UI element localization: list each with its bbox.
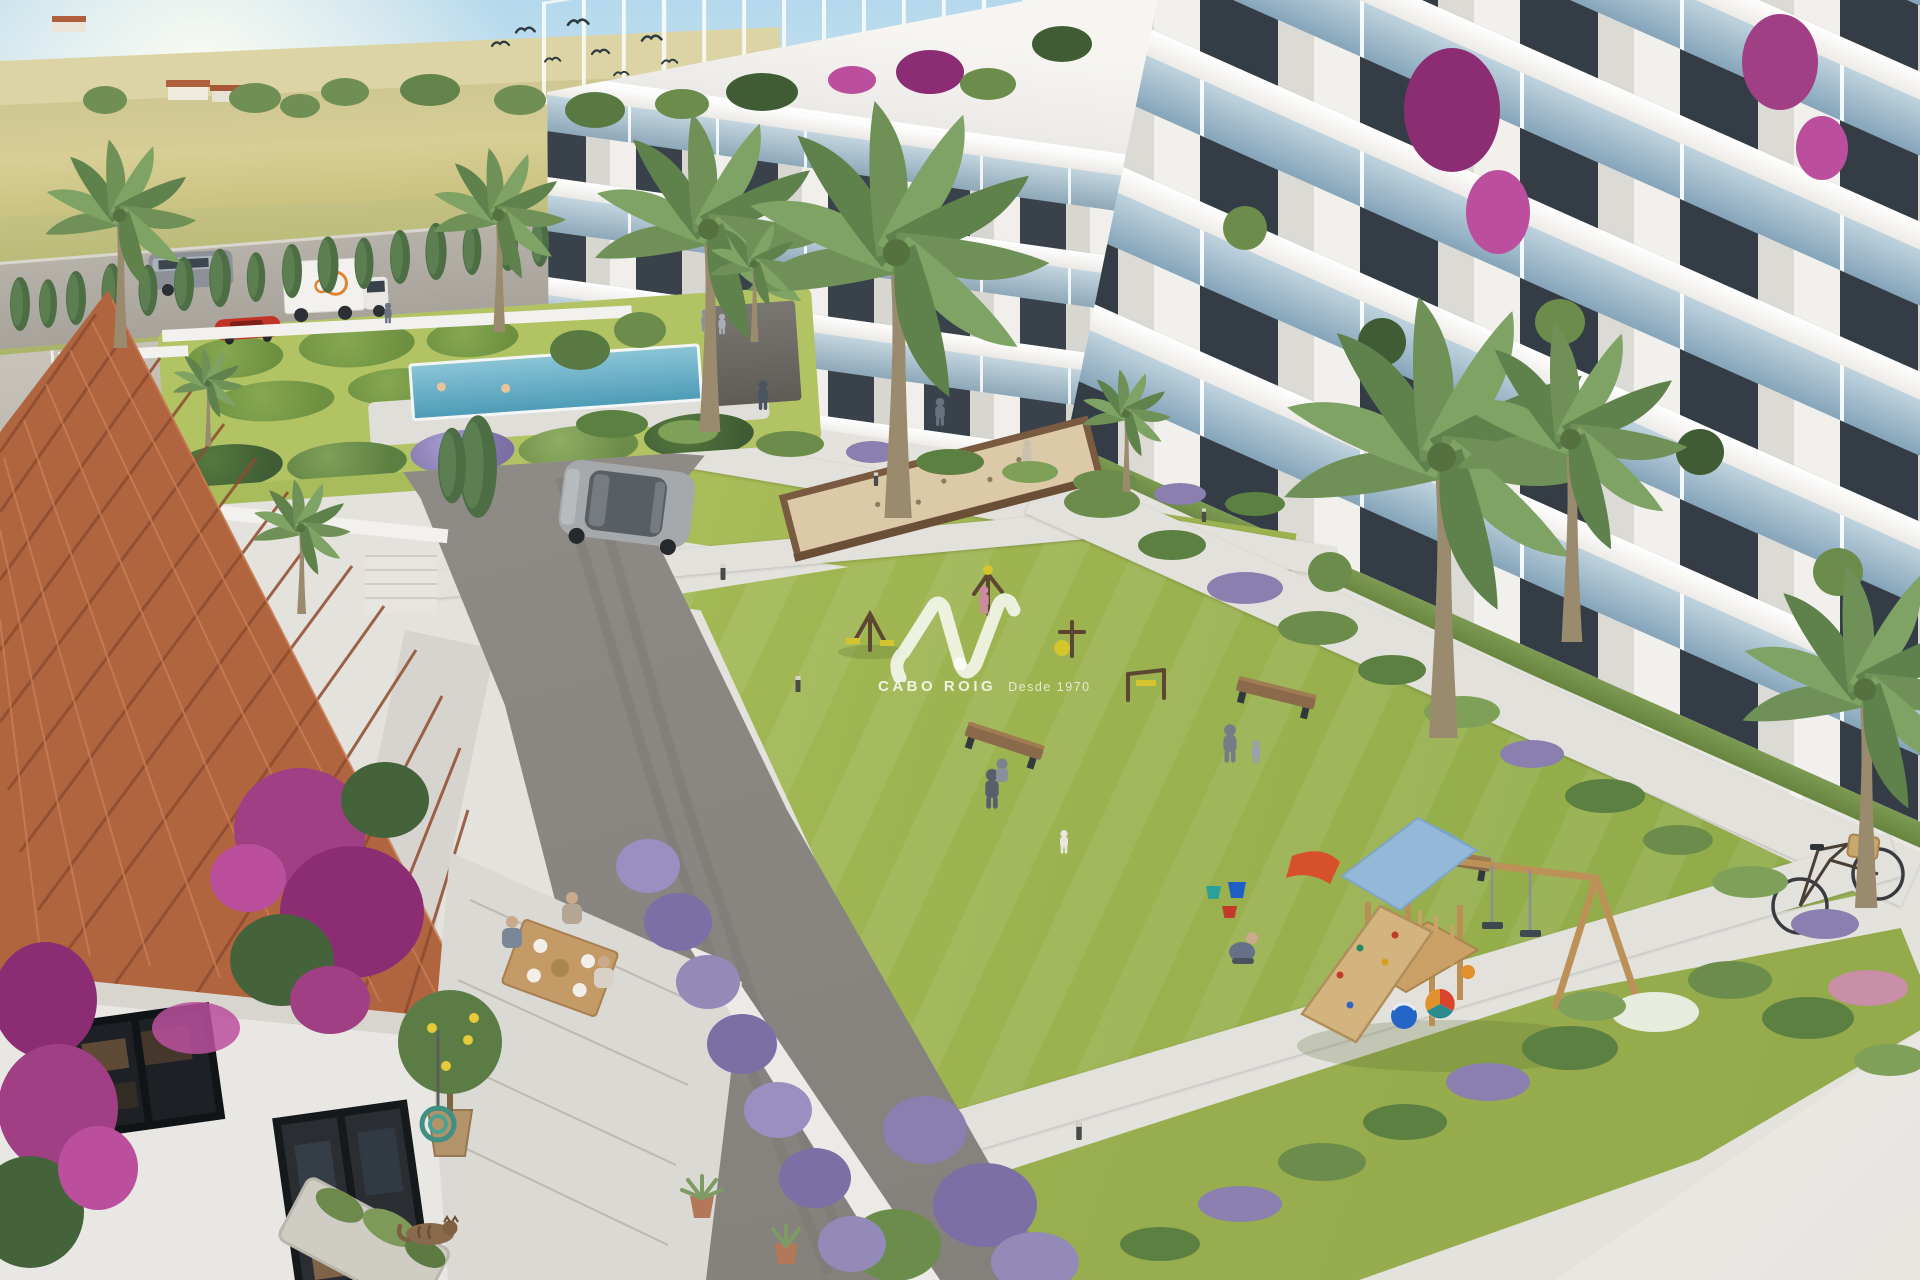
- person: [719, 314, 726, 335]
- palm-tree: [172, 347, 244, 446]
- swing-set: [1448, 860, 1636, 1006]
- person: [1224, 724, 1237, 762]
- crouching-person: [1229, 932, 1258, 964]
- toddler: [1060, 830, 1068, 854]
- distant-farmhouses: [52, 16, 244, 102]
- distant-trees: [83, 74, 625, 128]
- toy-buckets: [1206, 882, 1246, 918]
- silver-suv: [556, 458, 697, 557]
- adult-holding-child: [985, 759, 1008, 809]
- child: [1252, 740, 1260, 764]
- petanque-court: [779, 419, 1105, 562]
- palm-tree: [43, 138, 196, 348]
- palm-tree: [251, 478, 350, 614]
- av-monogram-logo: [890, 586, 1022, 682]
- blue-play-roof: [1342, 818, 1476, 910]
- gym-parallel-bars: [1128, 670, 1164, 700]
- wooden-bench: [1233, 676, 1317, 721]
- bollard-light: [874, 472, 878, 486]
- red-slide-toy: [1286, 851, 1340, 884]
- person: [935, 398, 945, 426]
- render-scene: CABO ROIGDesde 1970: [0, 0, 1920, 1280]
- bollard-light: [1076, 1122, 1082, 1140]
- diner: [562, 892, 582, 924]
- bollard-light: [796, 676, 801, 692]
- brand-tagline: Desde 1970: [1008, 680, 1090, 694]
- brand-name: CABO ROIG: [878, 678, 996, 695]
- palm-tree: [1738, 562, 1920, 908]
- bollard-light: [721, 564, 726, 580]
- person: [758, 381, 768, 411]
- bollard-light: [1202, 508, 1206, 522]
- boundary-shrubs: [1120, 961, 1920, 1261]
- birds-flock: [492, 20, 677, 76]
- watermark-text: CABO ROIGDesde 1970: [878, 678, 1091, 696]
- watermark: CABO ROIGDesde 1970: [878, 586, 1118, 706]
